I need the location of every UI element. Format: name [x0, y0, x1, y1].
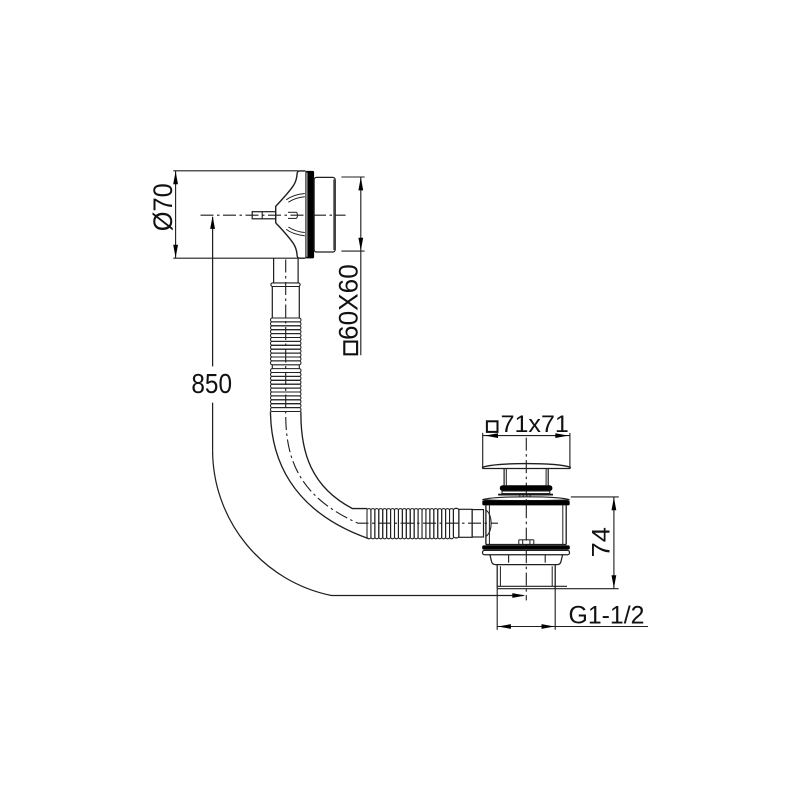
svg-text:60X60: 60X60 — [334, 264, 364, 340]
svg-text:74: 74 — [589, 527, 616, 557]
svg-text:850: 850 — [191, 368, 232, 399]
svg-text:Ø70: Ø70 — [148, 183, 178, 231]
svg-text:71x71: 71x71 — [501, 411, 569, 438]
svg-text:G1-1/2: G1-1/2 — [569, 602, 645, 630]
